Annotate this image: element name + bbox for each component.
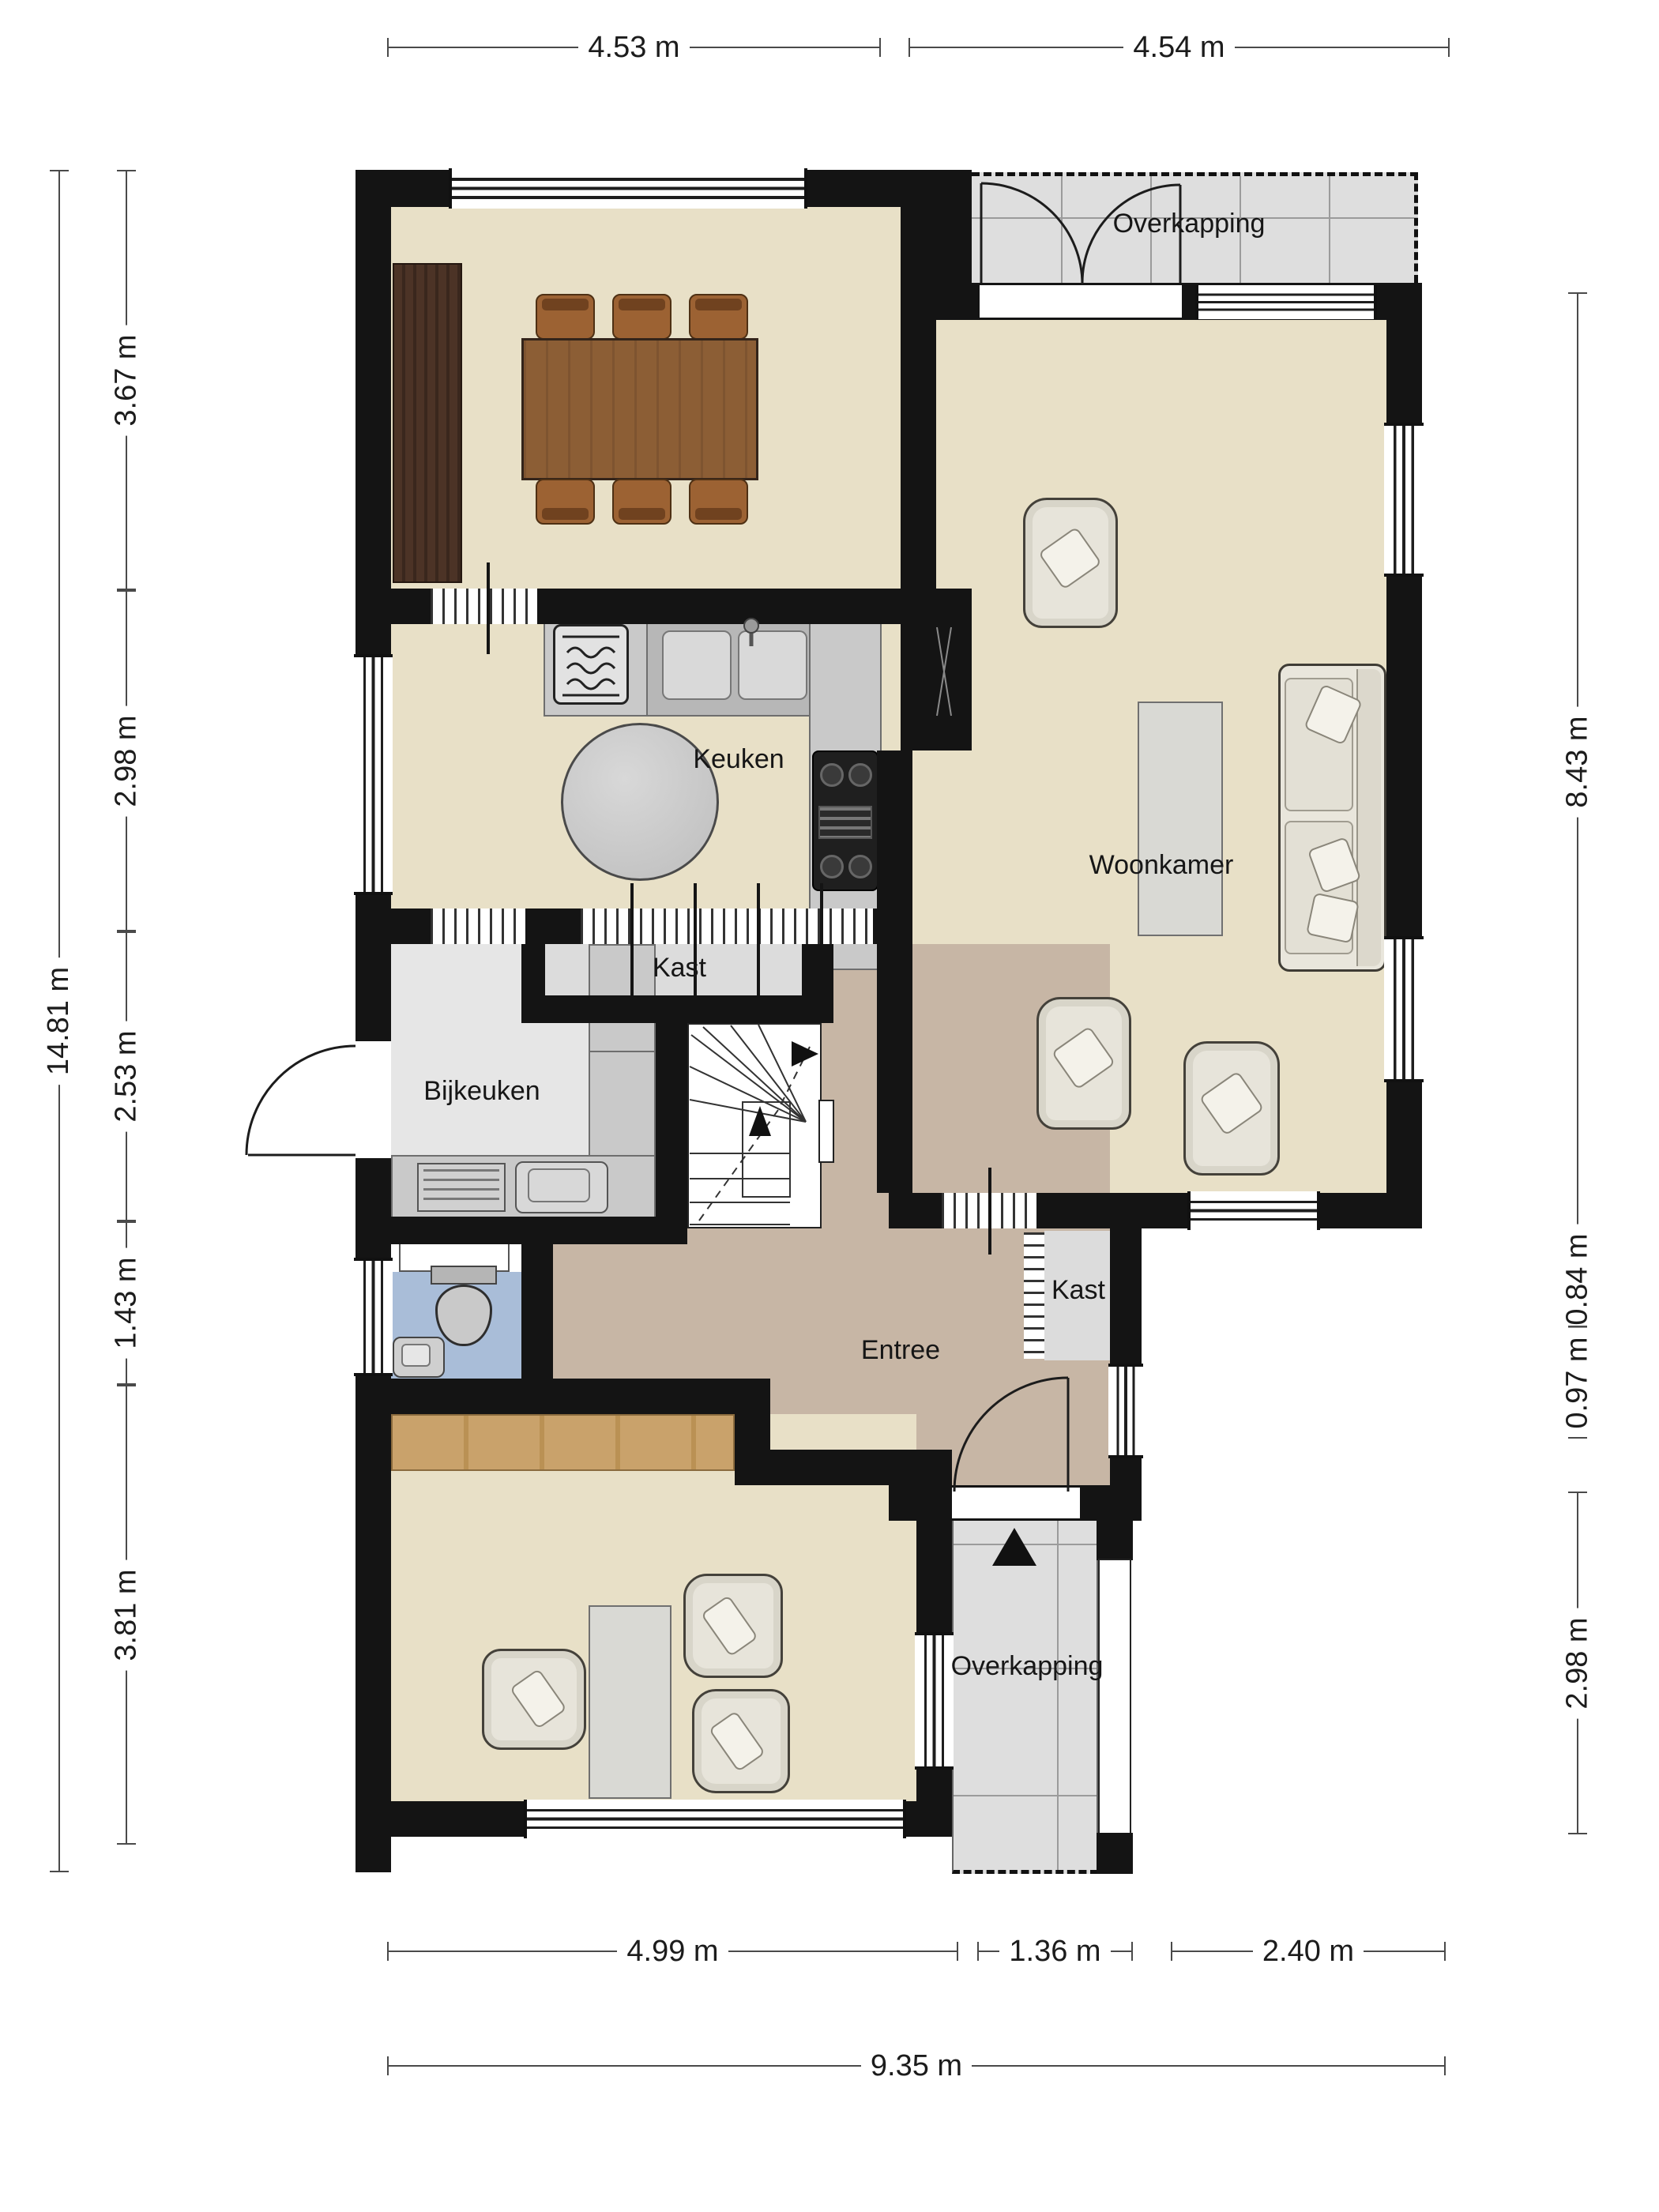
dimension-label: 2.40 m [1253,1933,1364,1970]
armchair [1036,997,1131,1130]
dimension-bottom-total: 9.35 m [387,2048,1446,2083]
wall [521,995,833,1023]
opening-tick [630,883,634,1005]
wall [355,1217,687,1244]
wall [1097,1521,1133,1560]
room-label-overkapping-bottom: Overkapping [928,1651,1126,1682]
dimension-top-left: 4.53 m [387,30,881,65]
pillow [701,1595,758,1657]
dimension-left-seg: 3.81 m [109,1385,144,1845]
dining-chair [536,479,595,525]
armchair [692,1689,790,1793]
room-label-keuken: Keuken [656,744,822,775]
door-opening [355,1041,391,1158]
wall [1097,1833,1133,1874]
dining-chair [536,294,595,340]
dimension-left-seg: 2.53 m [109,931,144,1221]
window [524,1800,906,1838]
french-door-opening [980,285,1182,318]
sofa [1278,664,1386,972]
room-label-kast-entree: Kast [1023,1275,1134,1306]
pillow [1038,526,1102,590]
dimension-right-seg: 0.97 m [1560,1327,1595,1439]
wall [901,320,936,589]
washing-machine-icon [417,1163,506,1212]
sliding-door-hatch [581,908,873,944]
side-table [589,1605,671,1799]
window [1187,1191,1320,1230]
wall [901,589,972,750]
burner-icon [848,763,872,787]
window [354,1258,393,1376]
dimension-label: 1.43 m [108,1247,145,1358]
sofa-back [1356,669,1381,966]
wall [521,1244,553,1379]
window [1384,936,1424,1082]
pillow [1051,1026,1116,1091]
sliding-door-hatch [431,908,525,944]
sink-basin [662,630,732,700]
wall [735,1450,952,1485]
porch-grid-line [1061,176,1063,283]
burner-icon [820,763,844,787]
dimension-bottom-seg: 4.99 m [387,1934,958,1969]
dimension-left-total: 14.81 m [42,170,77,1872]
dining-chair [689,294,748,340]
dimension-label: 2.98 m [1559,1608,1597,1718]
opening-tick [988,1168,991,1255]
dimension-label: 2.98 m [108,705,145,816]
dimension-label: 9.35 m [861,2048,972,2085]
room-label-bijkeuken: Bijkeuken [387,1076,577,1107]
window [354,654,393,895]
dimension-label: 4.53 m [578,29,689,66]
cabinet-divider [589,1051,656,1052]
dimension-label: 4.99 m [617,1933,728,1970]
entrance-arrow-icon [992,1528,1036,1566]
opening-tick [820,883,823,1005]
dimension-left-seg: 3.67 m [109,170,144,590]
room-label-kast-keuken: Kast [624,953,735,984]
pillow [509,1668,567,1730]
opening-tick [757,883,760,1005]
dimension-label: 14.81 m [41,957,78,1085]
toilet-tank [431,1266,497,1285]
porch-bottom [952,1521,1098,1874]
coffee-table [1138,702,1223,936]
armchair [683,1574,783,1678]
microwave-icon [553,624,629,705]
dimension-left-seg: 2.98 m [109,590,144,931]
staircase [687,1023,822,1228]
dining-chair [689,479,748,525]
front-door-opening [952,1488,1080,1518]
wall [901,170,972,320]
dimension-left-seg: 1.43 m [109,1221,144,1385]
dimension-bottom-seg: 2.40 m [1171,1934,1446,1969]
dining-chair [612,294,671,340]
wall [877,750,912,1193]
stove-icon [812,750,878,891]
window [449,168,807,209]
dimension-right-seg: 0.84 m [1560,1231,1595,1327]
porch-side-strip [1098,1559,1131,1834]
wall [355,1379,770,1414]
burner-icon [848,855,872,878]
wall [355,170,391,1872]
wall [521,944,545,995]
window [1384,423,1424,577]
sliding-door-hatch [431,589,537,624]
dimension-label: 0.97 m [1559,1327,1597,1438]
sideboard [393,263,462,583]
dimension-label: 0.84 m [1559,1224,1597,1334]
dimension-right-seg: 2.98 m [1560,1492,1595,1834]
dimension-top-right: 4.54 m [908,30,1450,65]
dimension-bottom-seg: 1.36 m [977,1934,1133,1969]
room-label-woonkamer: Woonkamer [1051,850,1272,881]
pillow [1306,892,1360,943]
dimension-right-seg: 8.43 m [1560,292,1595,1231]
utility-sink-icon [515,1161,608,1213]
dimension-label: 1.36 m [999,1933,1110,1970]
dimension-label: 8.43 m [1559,706,1597,817]
wall [656,1023,687,1228]
burner-icon [820,855,844,878]
window [1195,285,1377,319]
dining-table [521,338,758,480]
dining-chair [612,479,671,525]
stair-handrail [818,1100,834,1163]
window [1108,1364,1143,1458]
porch-grid-line [1329,176,1330,283]
porch-grid-line [954,1795,1097,1796]
armchair [482,1649,586,1750]
pillow [1198,1070,1264,1136]
dimension-label: 3.81 m [108,1559,145,1670]
wood-counter [391,1414,735,1471]
hand-basin-icon [393,1337,445,1378]
armchair [1023,498,1118,628]
opening-tick [487,562,490,654]
pillow [709,1710,766,1772]
room-label-overkapping-top: Overkapping [1090,209,1288,239]
dimension-label: 2.53 m [108,1021,145,1131]
armchair [1183,1041,1280,1176]
opening-tick [694,883,697,1005]
dimension-label: 3.67 m [108,325,145,435]
dimension-label: 4.54 m [1123,29,1234,66]
grill-icon [818,806,872,839]
sink-basin [738,630,807,700]
porch-grid-line [1057,1521,1059,1870]
floorplan: Keuken Woonkamer Bijkeuken Entree Kast K… [0,0,1659,2212]
room-label-entree: Entree [822,1335,980,1366]
